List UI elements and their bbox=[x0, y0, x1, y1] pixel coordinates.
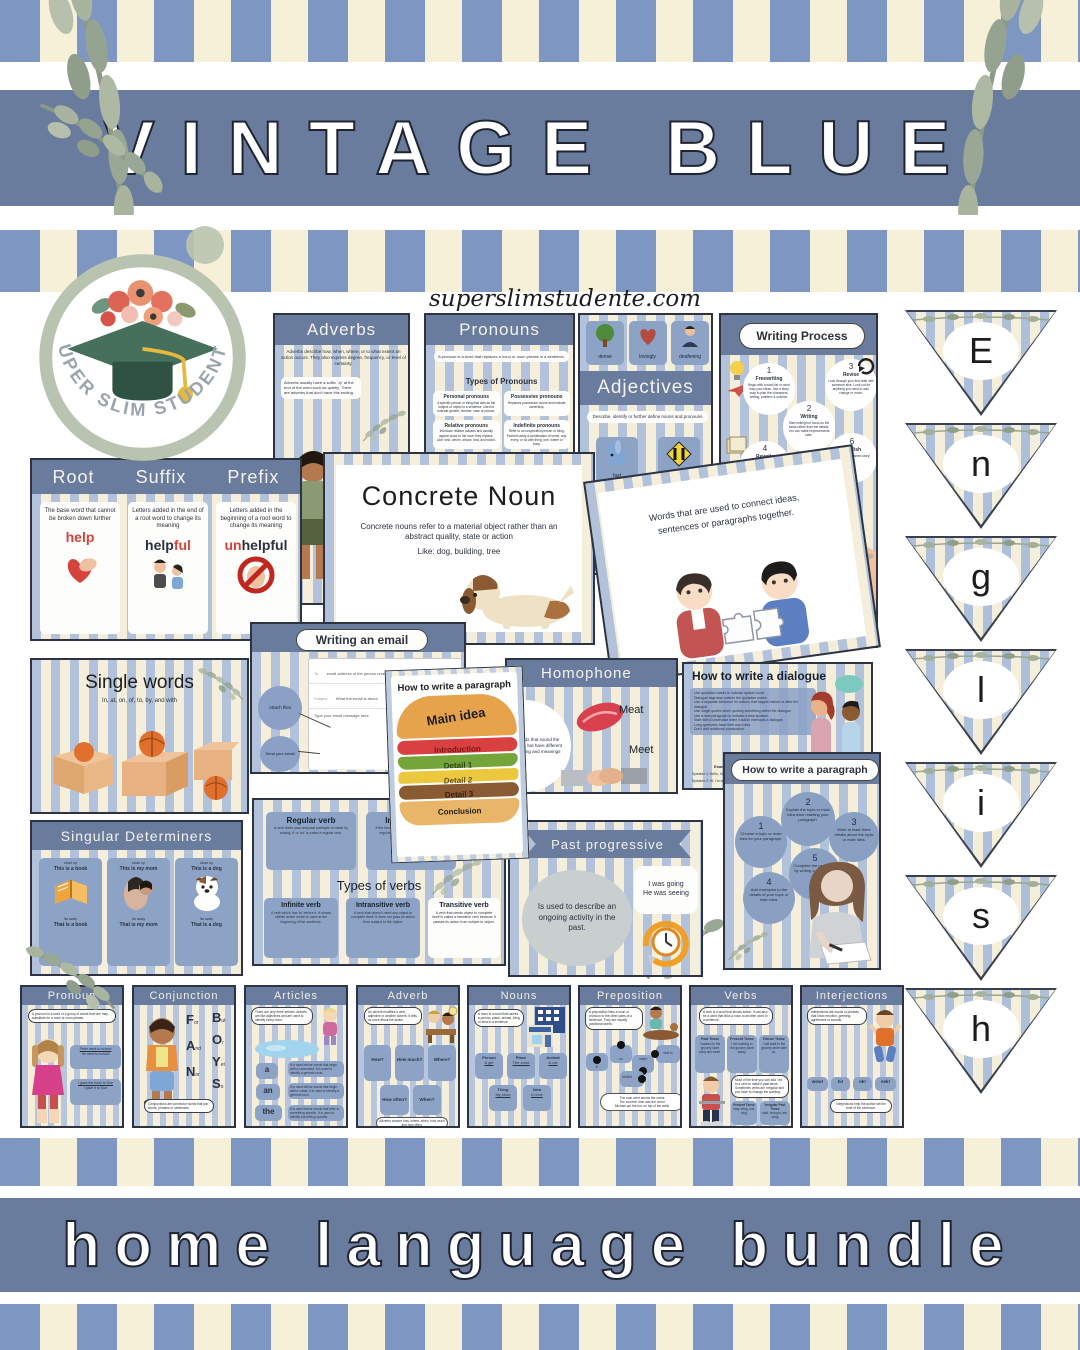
card-connectors: Words that are used to connect ideas, se… bbox=[583, 444, 881, 685]
kids-desk-icon bbox=[422, 1007, 458, 1043]
verbs-list1: Present Tensestay, bring, eat, sing bbox=[731, 1101, 757, 1125]
card-past-progressive: Past progressive Is used to describe an … bbox=[508, 820, 703, 977]
past-progressive-desc: Is used to describe an ongoing activity … bbox=[522, 870, 632, 966]
root-title: Root bbox=[53, 467, 95, 488]
pronouns-intro: A pronoun is a word that replaces a noun… bbox=[434, 351, 569, 362]
heart-hug-icon bbox=[635, 323, 661, 349]
mom-hug-icon bbox=[119, 872, 159, 912]
refresh-arrows-icon bbox=[855, 355, 877, 377]
intransitive-verb-box: Intransitive verb A verb that doesn't ne… bbox=[346, 898, 420, 958]
foliage-low-left-icon bbox=[10, 940, 120, 1015]
man-icon bbox=[677, 323, 703, 349]
infinite-verb-box: Infinite verb A verb which has 'to' befo… bbox=[264, 898, 338, 958]
email-send-button[interactable]: Send bbox=[314, 772, 342, 774]
noun-idea: IdeaIn love bbox=[523, 1085, 551, 1111]
burger-tomato: Introduction bbox=[397, 737, 517, 755]
pronoun-type: Relative pronounsIntroduce relative clau… bbox=[433, 420, 500, 449]
fanboys-o: Or bbox=[212, 1031, 234, 1049]
email-attach-callout: Attach files bbox=[258, 686, 302, 730]
poster-interjections-title: Interjections bbox=[802, 987, 902, 1005]
verbs-bubble2: Most of the time you can add '-ed' to a … bbox=[731, 1075, 789, 1098]
pronoun-type: Possessive pronounsReplaces possessive n… bbox=[504, 391, 571, 416]
puppy-icon bbox=[187, 872, 227, 912]
pennant-s: s bbox=[905, 875, 1057, 981]
prefix-box: Letters added in the beginning of a root… bbox=[216, 502, 296, 634]
card-homophone: Homophone Words that sound the same, but… bbox=[505, 658, 678, 794]
bottom-banner: home language bundle bbox=[0, 1198, 1080, 1292]
adjective-tile-lovingly: lovingly bbox=[629, 321, 667, 365]
poster-articles-title: Articles bbox=[246, 987, 346, 1005]
adverb-bubble: An adverb modifies a verb, adjective or … bbox=[364, 1007, 422, 1025]
verbs-past-box: Past TenseI walked to the grocery store … bbox=[695, 1035, 725, 1073]
email-header: Writing an email bbox=[296, 629, 428, 651]
puzzle-people-icon bbox=[649, 548, 830, 663]
adverb-box-howmuch: How much? bbox=[395, 1045, 424, 1081]
noun-thing: ThingMy shoe bbox=[489, 1085, 517, 1111]
adjectives-header: Adjectives bbox=[580, 371, 711, 405]
adverbs-leaf-icon bbox=[361, 395, 410, 457]
handshake-icon bbox=[561, 756, 647, 794]
fanboys-s: So bbox=[212, 1075, 234, 1093]
poster-articles: Articles There are only three articles. … bbox=[244, 985, 348, 1128]
vt-leaf-icon bbox=[430, 856, 490, 898]
dog-icon bbox=[455, 567, 575, 629]
dialogue-rules: Use quotation marks to indicate spoken w… bbox=[690, 688, 816, 735]
girl-small-icon bbox=[316, 1007, 344, 1047]
pennant-letter: s bbox=[943, 887, 1019, 945]
past-progressive-ribbon: Past progressive bbox=[524, 830, 691, 858]
concrete-noun-desc: Concrete nouns refer to a material objec… bbox=[336, 522, 582, 543]
article-note-an: It is used before words that begin with … bbox=[288, 1083, 344, 1099]
bundle-subtitle: home language bundle bbox=[62, 1210, 1017, 1281]
pennant-letter: i bbox=[943, 774, 1019, 832]
adverbs-intro: Adverbs describe how, when, where, or to… bbox=[281, 349, 406, 367]
adverb-box-when: When? bbox=[413, 1085, 441, 1115]
poster-conjunction: Conjunction For And Nor But Or Yet So Co… bbox=[132, 985, 236, 1128]
past-progressive-examples: I was going He was seeing bbox=[634, 866, 698, 914]
email-subject-value[interactable]: What the email is about bbox=[336, 696, 378, 701]
product-cover: VINTAGE BLUE home language bundle bbox=[0, 0, 1080, 1350]
poster-preposition-title: Preposition bbox=[580, 987, 680, 1005]
poster-interjections: Interjections Interjections are words or… bbox=[800, 985, 904, 1128]
paragraph-steps-header: How to write a paragraph bbox=[731, 759, 879, 781]
noun-person: PersonA girl bbox=[475, 1053, 503, 1079]
clock-icon bbox=[640, 916, 692, 968]
suffix-title: Suffix bbox=[136, 467, 187, 488]
pennant-g: g bbox=[905, 536, 1057, 642]
burger-bottom-bun: Conclusion bbox=[399, 798, 520, 826]
adjective-tile-deafening: deafening bbox=[671, 321, 709, 365]
card-single-words: Single words In, at, on, of, to, by, and… bbox=[30, 658, 249, 814]
fanboys-n: Nor bbox=[186, 1063, 208, 1081]
determiners-header: Singular Determiners bbox=[32, 822, 241, 850]
poster-preposition: Preposition A preposition links a noun o… bbox=[578, 985, 682, 1128]
interjection-wow: wow! bbox=[807, 1077, 828, 1091]
prep-tile-in: in bbox=[586, 1053, 608, 1071]
pennant-letter: g bbox=[943, 548, 1019, 606]
root-box: The base word that cannot be broken down… bbox=[40, 502, 120, 634]
interjection-eek: eek! bbox=[875, 1077, 896, 1091]
verbs-future-box: Future TenseI will walk to the grocery s… bbox=[759, 1035, 789, 1073]
poster-nouns: Nouns A noun is a word that names a pers… bbox=[467, 985, 571, 1128]
poster-verbs: Verbs A verb is a word that shows action… bbox=[689, 985, 793, 1128]
pronouns-header: Pronouns bbox=[426, 315, 573, 345]
rabbit-icon bbox=[603, 440, 631, 468]
girl-pink-icon bbox=[26, 1035, 70, 1127]
interjections-note: Interjections help the author set the to… bbox=[830, 1099, 892, 1113]
interjection-hi: hi! bbox=[831, 1077, 850, 1091]
nouns-bubble: A noun is a word that names a person, pl… bbox=[474, 1009, 524, 1027]
adverb-note: Adverbs answer how, where, when, how muc… bbox=[376, 1117, 448, 1128]
bottom-stripe-band bbox=[0, 1304, 1080, 1350]
book-icon bbox=[51, 872, 91, 912]
boy-tray-icon bbox=[693, 1075, 731, 1127]
email-send-callout: Send your email bbox=[260, 736, 300, 772]
verbs-list2: Irregular Past Tensesaid, brought, ate, … bbox=[760, 1101, 790, 1125]
pennant-e: E bbox=[905, 310, 1057, 416]
article-a: a bbox=[256, 1063, 278, 1079]
attachment-icon[interactable] bbox=[347, 773, 354, 774]
article-note-the: It is used before words that refer to so… bbox=[288, 1105, 344, 1121]
preposition-examples: The man went across the roads The summer… bbox=[600, 1093, 682, 1111]
pronoun-example-box2: I gave the book to Sue I gave it to Sue bbox=[70, 1079, 121, 1105]
puddle-icon2 bbox=[254, 1039, 320, 1059]
pennant-letter: n bbox=[943, 435, 1019, 493]
prep-tile-behind: behind bbox=[620, 1071, 644, 1087]
website-url: superslimstudente.com bbox=[340, 286, 790, 312]
interjections-bubble: Interjections are words or phrases that … bbox=[807, 1007, 867, 1025]
no-sign-icon bbox=[236, 555, 276, 595]
fanboys-f: For bbox=[186, 1011, 208, 1029]
pennant-letter: l bbox=[943, 661, 1019, 719]
pennant-i: i bbox=[905, 762, 1057, 868]
homophone-header: Homophone bbox=[507, 660, 676, 687]
fanboys-y: Yet bbox=[212, 1053, 234, 1071]
boxes-balls-icon bbox=[44, 722, 239, 804]
lower-stripe-band bbox=[0, 1138, 1080, 1186]
prefix-title: Prefix bbox=[227, 467, 279, 488]
poster-adverb: Adverb An adverb modifies a verb, adject… bbox=[356, 985, 460, 1128]
ps-leaf-icon bbox=[727, 926, 775, 966]
card-concrete-noun: Concrete Noun Concrete nouns refer to a … bbox=[323, 452, 595, 645]
writing-woman-icon bbox=[779, 858, 879, 968]
bundle-title: VINTAGE BLUE bbox=[104, 105, 976, 192]
prep-tile-on: on bbox=[610, 1045, 632, 1063]
regular-verb-box: Regular verb A verb that's past and past… bbox=[266, 812, 356, 870]
concrete-noun-example: Like: dog, building, tree bbox=[336, 547, 582, 557]
pronoun-type: Indefinite pronounsRefer to an unspecifi… bbox=[504, 420, 571, 449]
fanboys-b: But bbox=[212, 1009, 234, 1027]
card-paragraph-steps: How to write a paragraph 1 Choose a topi… bbox=[723, 752, 881, 970]
foliage-top-right-icon bbox=[900, 0, 1080, 215]
email-to-label: To bbox=[314, 671, 318, 676]
prep-tile-nextto: next to bbox=[656, 1045, 680, 1063]
email-subject-label: Subject bbox=[314, 696, 327, 701]
verbs-bubble: A verb is a word that shows action. It c… bbox=[699, 1007, 773, 1025]
transitive-verb-box: Transitive verb A verb that needs object… bbox=[428, 898, 500, 958]
boy-log-dog-icon bbox=[642, 1005, 680, 1041]
emoji-icon[interactable] bbox=[359, 774, 366, 775]
homophone-word-meat: Meat bbox=[619, 704, 643, 716]
burger-top-bun: Main idea bbox=[396, 693, 517, 739]
preposition-bubble: A preposition links a noun or pronoun to… bbox=[585, 1007, 643, 1030]
pennant-n: n bbox=[905, 423, 1057, 529]
adjectives-intro: Describe, identify or further define nou… bbox=[587, 411, 708, 423]
adverb-box-how: How? bbox=[364, 1045, 391, 1081]
noun-animal: AnimalA cat bbox=[539, 1053, 567, 1079]
pronoun-example-box1: Peter went to school He went to school bbox=[70, 1045, 121, 1069]
adverb-box-howoften: How often? bbox=[380, 1085, 409, 1115]
concrete-noun-title: Concrete Noun bbox=[336, 481, 582, 512]
adverbs-note-suffix: Adverbs usually have a suffix '-ly' at t… bbox=[281, 377, 361, 399]
sw-leaf-icon bbox=[191, 662, 245, 706]
writing-process-header: Writing Process bbox=[739, 323, 865, 349]
pstep-2: 2 Explain the topic or main idea when st… bbox=[781, 792, 835, 846]
articles-bubble: There are only three articles. Articles … bbox=[251, 1007, 313, 1025]
determiner-dog: close up This is a dog far away That is … bbox=[175, 858, 238, 966]
interjection-ok: ok! bbox=[853, 1077, 872, 1091]
pronoun-type: Personal pronounsA specific person or th… bbox=[433, 391, 500, 416]
narrow-road-sign-icon bbox=[665, 440, 693, 468]
jumping-boy-icon bbox=[866, 1007, 904, 1071]
pennant-letter: h bbox=[943, 1000, 1019, 1058]
article-note-a: It is used before words that begin with … bbox=[288, 1061, 344, 1077]
logo: SUPER SLIM STUDENTE bbox=[35, 250, 250, 465]
adverbs-header: Adverbs bbox=[275, 315, 408, 345]
heart-hands-icon bbox=[58, 553, 102, 587]
article-an: an bbox=[256, 1084, 280, 1100]
pronouns-subtitle: Types of Pronouns bbox=[426, 377, 575, 387]
suffix-box: Letters added in the end of a root word … bbox=[128, 502, 208, 634]
adjective-tile-dense: dense bbox=[586, 321, 624, 365]
noun-place: PlaceThe store bbox=[507, 1053, 535, 1079]
pennant-letter: E bbox=[943, 322, 1019, 380]
article-the: the bbox=[255, 1105, 282, 1121]
poster-nouns-title: Nouns bbox=[469, 987, 569, 1005]
pennant-h: h bbox=[905, 988, 1057, 1094]
helping-kids-icon bbox=[146, 557, 190, 595]
card-burger: How to write a paragraph Main idea Intro… bbox=[385, 666, 530, 864]
card-affixes: Root Suffix Prefix The base word that ca… bbox=[30, 458, 302, 641]
foliage-top-left2-icon bbox=[30, 90, 180, 220]
homophone-word-meet: Meet bbox=[629, 744, 653, 756]
tree-icon bbox=[592, 323, 618, 349]
poster-adverb-title: Adverb bbox=[358, 987, 458, 1005]
girl-backpack-icon bbox=[138, 1013, 184, 1109]
pennant-l: l bbox=[905, 649, 1057, 755]
adverb-box-where: Where? bbox=[428, 1045, 456, 1081]
poster-verbs-title: Verbs bbox=[691, 987, 791, 1005]
poster-conjunction-title: Conjunction bbox=[134, 987, 234, 1005]
verbs-present-box: Present TenseI am walking to the grocery… bbox=[727, 1035, 757, 1073]
building-icon bbox=[525, 1005, 569, 1049]
conjunction-bubble: Conjunctions are connector words that jo… bbox=[144, 1099, 214, 1113]
fanboys-a: And bbox=[186, 1037, 208, 1055]
